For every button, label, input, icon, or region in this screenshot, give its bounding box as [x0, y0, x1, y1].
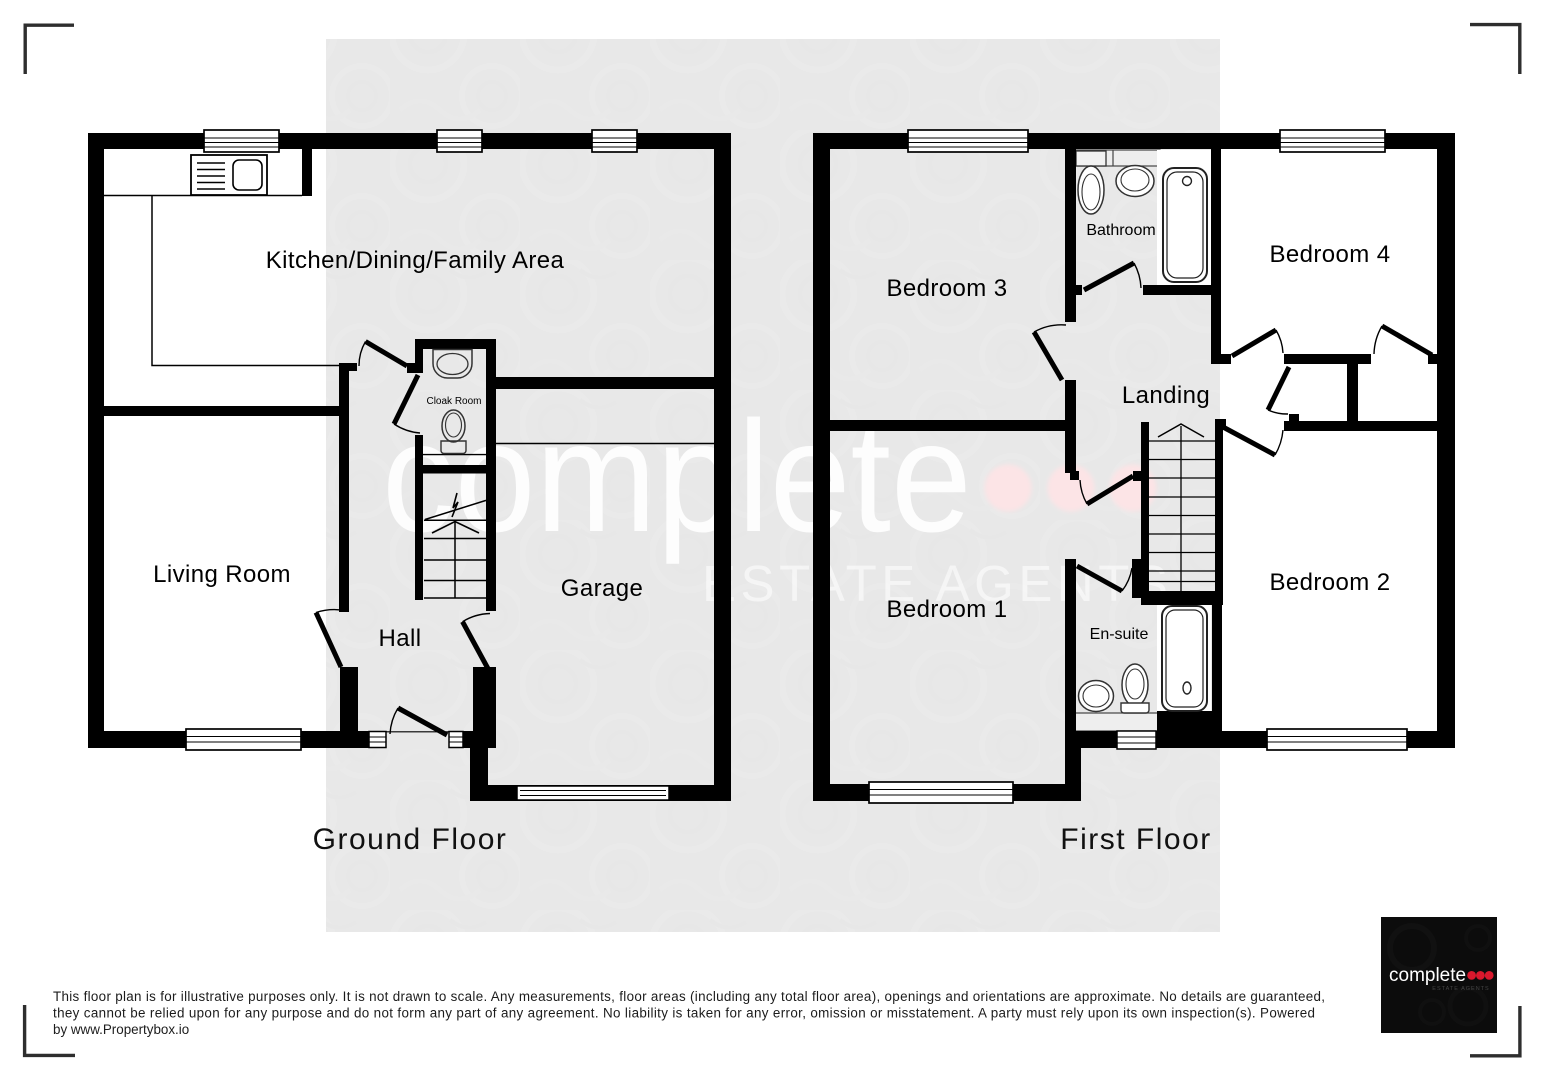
- svg-text:Bathroom: Bathroom: [1086, 222, 1155, 239]
- svg-text:Living Room: Living Room: [153, 561, 291, 588]
- svg-text:En-suite: En-suite: [1090, 626, 1149, 643]
- svg-text:ESTATE AGENTS: ESTATE AGENTS: [1432, 986, 1489, 992]
- svg-text:they cannot be relied upon for: they cannot be relied upon for any purpo…: [53, 1006, 1315, 1021]
- svg-text:Hall: Hall: [379, 625, 422, 652]
- svg-text:by www.Propertybox.io: by www.Propertybox.io: [53, 1022, 189, 1037]
- svg-text:Bedroom 4: Bedroom 4: [1270, 241, 1391, 268]
- svg-text:This floor plan is for illustr: This floor plan is for illustrative purp…: [53, 989, 1325, 1004]
- svg-text:complete: complete: [1389, 965, 1466, 986]
- svg-text:Cloak Room: Cloak Room: [426, 396, 481, 407]
- svg-text:Garage: Garage: [561, 575, 643, 602]
- svg-text:Bedroom 1: Bedroom 1: [887, 596, 1008, 623]
- svg-text:First Floor: First Floor: [1060, 823, 1212, 856]
- svg-text:Ground Floor: Ground Floor: [313, 823, 508, 856]
- svg-text:Kitchen/Dining/Family Area: Kitchen/Dining/Family Area: [266, 247, 565, 274]
- svg-text:Landing: Landing: [1122, 382, 1210, 409]
- svg-text:Bedroom 3: Bedroom 3: [887, 275, 1008, 302]
- svg-text:Bedroom 2: Bedroom 2: [1270, 569, 1391, 596]
